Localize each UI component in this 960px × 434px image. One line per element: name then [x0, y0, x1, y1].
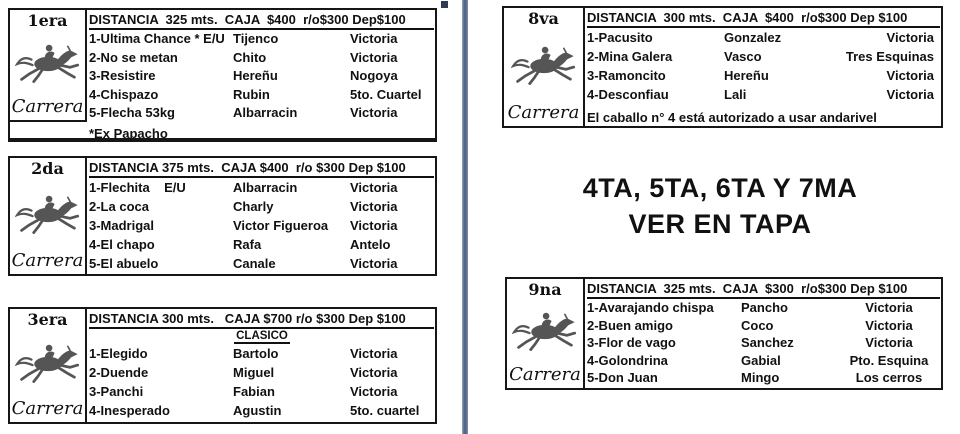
entry-row: 1-Flechita E/U Albarracin Victoria [89, 178, 435, 197]
horse-icon [15, 42, 81, 86]
race-card-8va: 8va Carrera DISTANCIA 300 mts. CAJA $400… [502, 6, 943, 128]
horse-name: 2-La coca [89, 197, 233, 216]
stud-name: Victoria [841, 299, 941, 317]
jockey-name: Coco [741, 317, 841, 335]
jockey-name: Albarracin [233, 104, 350, 123]
stud-name: Victoria [844, 28, 941, 47]
jockey-name: Fabian [233, 382, 350, 401]
horse-name: 2-No se metan [89, 49, 233, 68]
horse-name: 1-Elegido [89, 344, 233, 363]
race-label-3era: 3era Carrera [10, 309, 87, 422]
entry-row: 3-Panchi Fabian Victoria [89, 382, 435, 401]
race-number: 3era [27, 311, 67, 329]
jockey-name: Chito [233, 49, 350, 68]
race-word: Carrera [509, 365, 581, 385]
race-subheader: CLASICO [89, 329, 435, 344]
race-number: 1era [27, 12, 67, 30]
race-number: 2da [31, 160, 64, 178]
entry-row: 4-Inesperado Agustin 5to. cuartel [89, 401, 435, 420]
jockey-name: Agustin [233, 401, 350, 420]
stud-name: Victoria [350, 197, 435, 216]
jockey-name: Hereñu [724, 66, 844, 85]
jockey-name: Miguel [233, 363, 350, 382]
stud-name: Pto. Esquina [841, 352, 941, 370]
entry-row: 2-Mina Galera Vasco Tres Esquinas [587, 47, 941, 66]
jockey-name: Mingo [741, 369, 841, 387]
stud-name: Victoria [844, 66, 941, 85]
jockey-name: Sanchez [741, 334, 841, 352]
horse-name: 3-Panchi [89, 382, 233, 401]
stud-name: Antelo [350, 235, 435, 254]
entry-row: 4-Chispazo Rubin 5to. Cuartel [89, 86, 435, 105]
horse-name: 3-Ramoncito [587, 66, 724, 85]
stud-name: 5to. cuartel [350, 401, 435, 420]
race-card-3era: 3era Carrera DISTANCIA 300 mts. CAJA $70… [8, 307, 437, 424]
horse-name: 4-Desconfiau [587, 85, 724, 104]
horse-name: 4-Inesperado [89, 401, 233, 420]
entry-row: 5-Flecha 53kg Albarracin Victoria [89, 104, 435, 123]
race-number: 8va [528, 10, 559, 28]
stud-name: Victoria [350, 363, 435, 382]
entry-row: 3-Resistire Hereñu Nogoya [89, 67, 435, 86]
jockey-name: Lali [724, 85, 844, 104]
entry-row: 4-El chapo Rafa Antelo [89, 235, 435, 254]
horse-name: 1-Flechita E/U [89, 178, 233, 197]
race-card-2da: 2da Carrera DISTANCIA 375 mts. CAJA $400… [8, 156, 437, 276]
center-notice-line1: 4TA, 5TA, 6TA Y 7MA [500, 170, 940, 206]
race-word: Carrera [12, 399, 84, 419]
stud-name: Victoria [350, 30, 435, 49]
entry-row: 5-Don Juan Mingo Los cerros [587, 369, 941, 387]
jockey-name: Rafa [233, 235, 350, 254]
race-header: DISTANCIA 300 mts. CAJA $400 r/o$300 Dep… [587, 9, 940, 28]
entry-row: 1-Elegido Bartolo Victoria [89, 344, 435, 363]
race-note: El caballo n° 4 está autorizado a usar a… [587, 110, 941, 125]
racing-program-page: 1era Carrera DISTANCIA 325 mts. CAJA $40… [0, 0, 960, 434]
horse-name: 4-Golondrina [587, 352, 741, 370]
divider-corner-mark [441, 1, 448, 8]
stud-name: Victoria [350, 49, 435, 68]
entry-row: 5-El abuelo Canale Victoria [89, 254, 435, 273]
horse-icon [15, 193, 81, 237]
race-header: DISTANCIA 325 mts. CAJA $300 r/o$300 Dep… [587, 280, 940, 299]
race-label-1era: 1era Carrera [10, 10, 87, 122]
page-divider [462, 0, 468, 434]
race-header: DISTANCIA 300 mts. CAJA $700 r/o $300 De… [89, 310, 434, 329]
stud-name: Victoria [350, 344, 435, 363]
horse-name: 3-Resistire [89, 67, 233, 86]
jockey-name: Gabial [741, 352, 841, 370]
race-word: Carrera [12, 251, 84, 271]
entry-row: 2-La coca Charly Victoria [89, 197, 435, 216]
horse-name: 5-Flecha 53kg [89, 104, 233, 123]
entry-row: 2-Duende Miguel Victoria [89, 363, 435, 382]
jockey-name: Hereñu [233, 67, 350, 86]
jockey-name: Tijenco [233, 30, 350, 49]
entry-row: 1-Ultima Chance * E/U Tijenco Victoria [89, 30, 435, 49]
jockey-name: Bartolo [233, 344, 350, 363]
center-notice-line2: VER EN TAPA [500, 206, 940, 242]
entry-row: 3-Flor de vago Sanchez Victoria [587, 334, 941, 352]
horse-name: 4-El chapo [89, 235, 233, 254]
race-word: Carrera [508, 103, 580, 123]
horse-name: 1-Avarajando chispa [587, 299, 741, 317]
stud-name: Victoria [350, 178, 435, 197]
stud-name: Nogoya [350, 67, 435, 86]
horse-icon [511, 44, 577, 88]
entry-row: 1-Pacusito Gonzalez Victoria [587, 28, 941, 47]
horse-name: 5-El abuelo [89, 254, 233, 273]
horse-name: 1-Ultima Chance * E/U [89, 30, 233, 49]
entry-row: 4-Desconfiau Lali Victoria [587, 85, 941, 104]
race-header: DISTANCIA 375 mts. CAJA $400 r/o $300 De… [89, 159, 434, 178]
jockey-name: Vasco [724, 47, 844, 66]
race-header: DISTANCIA 325 mts. CAJA $400 r/o$300 Dep… [89, 11, 434, 30]
entry-row: 3-Ramoncito Hereñu Victoria [587, 66, 941, 85]
race-label-9na: 9na Carrera [507, 279, 585, 388]
stud-name: Victoria [844, 85, 941, 104]
stud-name: Victoria [350, 216, 435, 235]
horse-name: 2-Duende [89, 363, 233, 382]
jockey-name: Gonzalez [724, 28, 844, 47]
race-label-8va: 8va Carrera [504, 8, 585, 126]
center-notice: 4TA, 5TA, 6TA Y 7MA VER EN TAPA [500, 170, 940, 242]
jockey-name: Albarracin [233, 178, 350, 197]
entry-row: 1-Avarajando chispa Pancho Victoria [587, 299, 941, 317]
stud-name: Victoria [841, 317, 941, 335]
horse-name: 3-Madrigal [89, 216, 233, 235]
race-number: 9na [528, 281, 561, 299]
horse-name: 2-Buen amigo [587, 317, 741, 335]
horse-icon [512, 310, 578, 354]
jockey-name: Pancho [741, 299, 841, 317]
horse-name: 5-Don Juan [587, 369, 741, 387]
race-card-9na: 9na Carrera DISTANCIA 325 mts. CAJA $300… [505, 277, 943, 390]
horse-icon [15, 342, 81, 386]
race-label-2da: 2da Carrera [10, 158, 87, 274]
jockey-name: Rubin [233, 86, 350, 105]
horse-name: 1-Pacusito [587, 28, 724, 47]
jockey-name: Canale [233, 254, 350, 273]
entry-row: 3-Madrigal Victor Figueroa Victoria [89, 216, 435, 235]
stud-name: Los cerros [841, 369, 941, 387]
entry-row: 4-Golondrina Gabial Pto. Esquina [587, 352, 941, 370]
race-footnote: *Ex Papacho [89, 126, 435, 141]
stud-name: Tres Esquinas [844, 47, 941, 66]
stud-name: Victoria [350, 382, 435, 401]
jockey-name: Victor Figueroa [233, 216, 350, 235]
race-word: Carrera [12, 97, 84, 117]
horse-name: 2-Mina Galera [587, 47, 724, 66]
race-card-1era: 1era Carrera DISTANCIA 325 mts. CAJA $40… [8, 8, 437, 142]
stud-name: Victoria [350, 254, 435, 273]
stud-name: 5to. Cuartel [350, 86, 435, 105]
jockey-name: Charly [233, 197, 350, 216]
stud-name: Victoria [841, 334, 941, 352]
horse-name: 3-Flor de vago [587, 334, 741, 352]
stud-name: Victoria [350, 104, 435, 123]
entry-row: 2-Buen amigo Coco Victoria [587, 317, 941, 335]
entry-row: 2-No se metan Chito Victoria [89, 49, 435, 68]
horse-name: 4-Chispazo [89, 86, 233, 105]
